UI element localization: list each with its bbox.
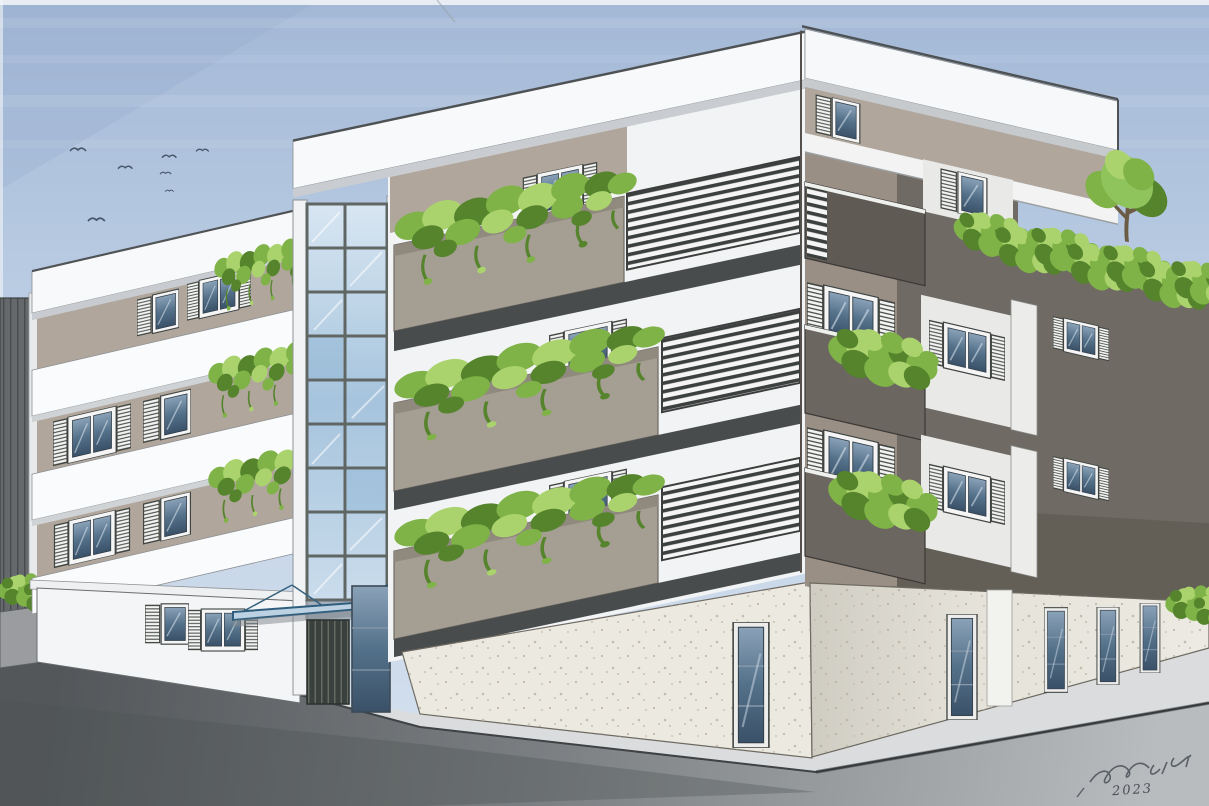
loggia-pillar — [1011, 446, 1037, 578]
loggia-pillar — [1011, 300, 1037, 436]
signature-year: 2023 — [1111, 781, 1154, 799]
entrance-sidelight-glass — [352, 586, 390, 712]
architectural-sketch: 2023 — [0, 0, 1209, 806]
ground-pillar — [987, 590, 1012, 706]
entrance-door-slatted — [307, 620, 349, 704]
neighbour-slatted-wall — [0, 298, 30, 613]
louver-corner-wrap — [807, 186, 827, 261]
tower-glass-curtain-wall — [307, 204, 387, 600]
